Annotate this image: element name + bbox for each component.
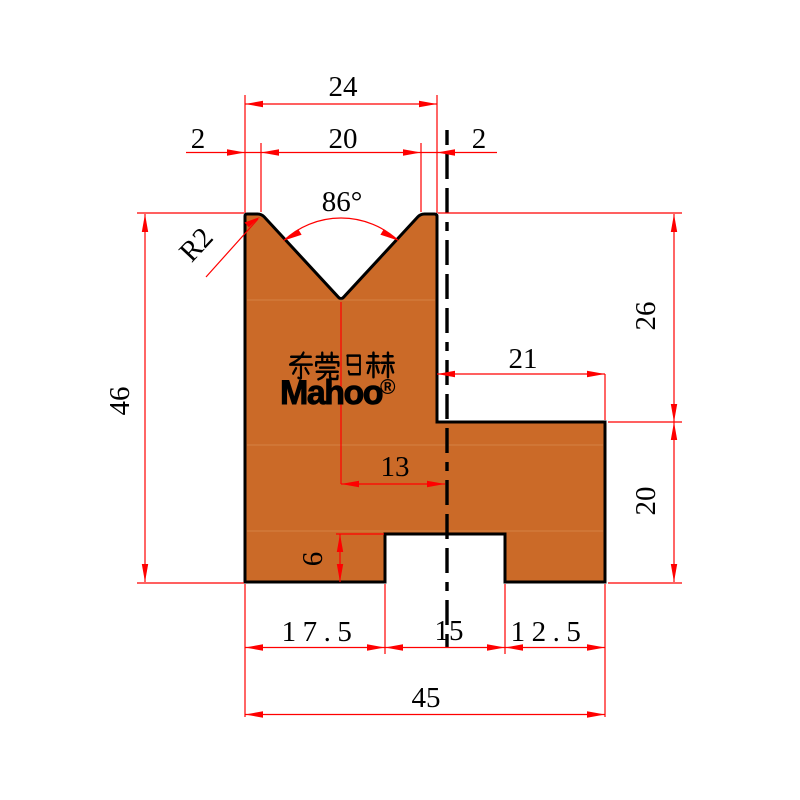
svg-text:46: 46 <box>104 387 136 416</box>
svg-text:86°: 86° <box>322 186 363 218</box>
svg-text:15: 15 <box>435 615 464 647</box>
svg-text:45: 45 <box>412 682 441 714</box>
svg-text:20: 20 <box>630 487 662 516</box>
svg-text:21: 21 <box>509 343 538 375</box>
svg-text:12.5: 12.5 <box>511 616 588 648</box>
svg-text:20: 20 <box>329 123 358 155</box>
svg-text:13: 13 <box>381 451 410 483</box>
svg-text:R2: R2 <box>173 222 219 269</box>
svg-text:24: 24 <box>329 71 359 103</box>
svg-text:2: 2 <box>472 123 487 155</box>
svg-text:®: ® <box>380 376 396 399</box>
svg-text:2: 2 <box>191 123 206 155</box>
svg-text:Mahoo: Mahoo <box>280 374 383 412</box>
svg-text:6: 6 <box>297 552 329 567</box>
svg-text:17.5: 17.5 <box>282 616 359 648</box>
svg-text:26: 26 <box>630 302 662 331</box>
